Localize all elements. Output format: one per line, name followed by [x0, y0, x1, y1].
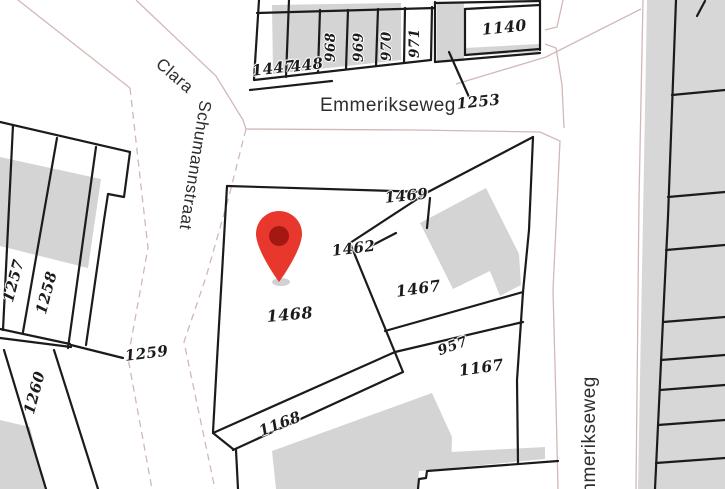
map[interactable]: 1447 448 968 969 970 971 1140 1253 1257 …	[0, 0, 725, 489]
parcel-label-1468: 1468	[266, 305, 314, 325]
street-label-emmerikseweg-right: Emmerikseweg	[580, 376, 599, 489]
parcel-label-969: 969	[353, 32, 367, 62]
location-pin-marker[interactable]	[256, 211, 302, 286]
parcel-label-970: 970	[381, 31, 395, 61]
street-label-emmerikseweg-top: Emmerikseweg	[320, 96, 456, 115]
parcel-label-971: 971	[409, 28, 423, 58]
building-bottom-left	[0, 420, 45, 489]
parcel-label-1469: 1469	[384, 186, 429, 205]
parcel-label-448: 448	[290, 56, 324, 75]
parcel-label-1140: 1140	[481, 17, 528, 37]
block-east-emmerikseweg	[638, 0, 725, 489]
parcel-label-968: 968	[325, 32, 339, 62]
pin-inner-dot	[269, 226, 289, 246]
pin-shadow	[272, 278, 290, 286]
building-bottom-center	[272, 393, 452, 489]
pin-body	[256, 211, 302, 282]
parcel-label-1253: 1253	[456, 92, 501, 111]
